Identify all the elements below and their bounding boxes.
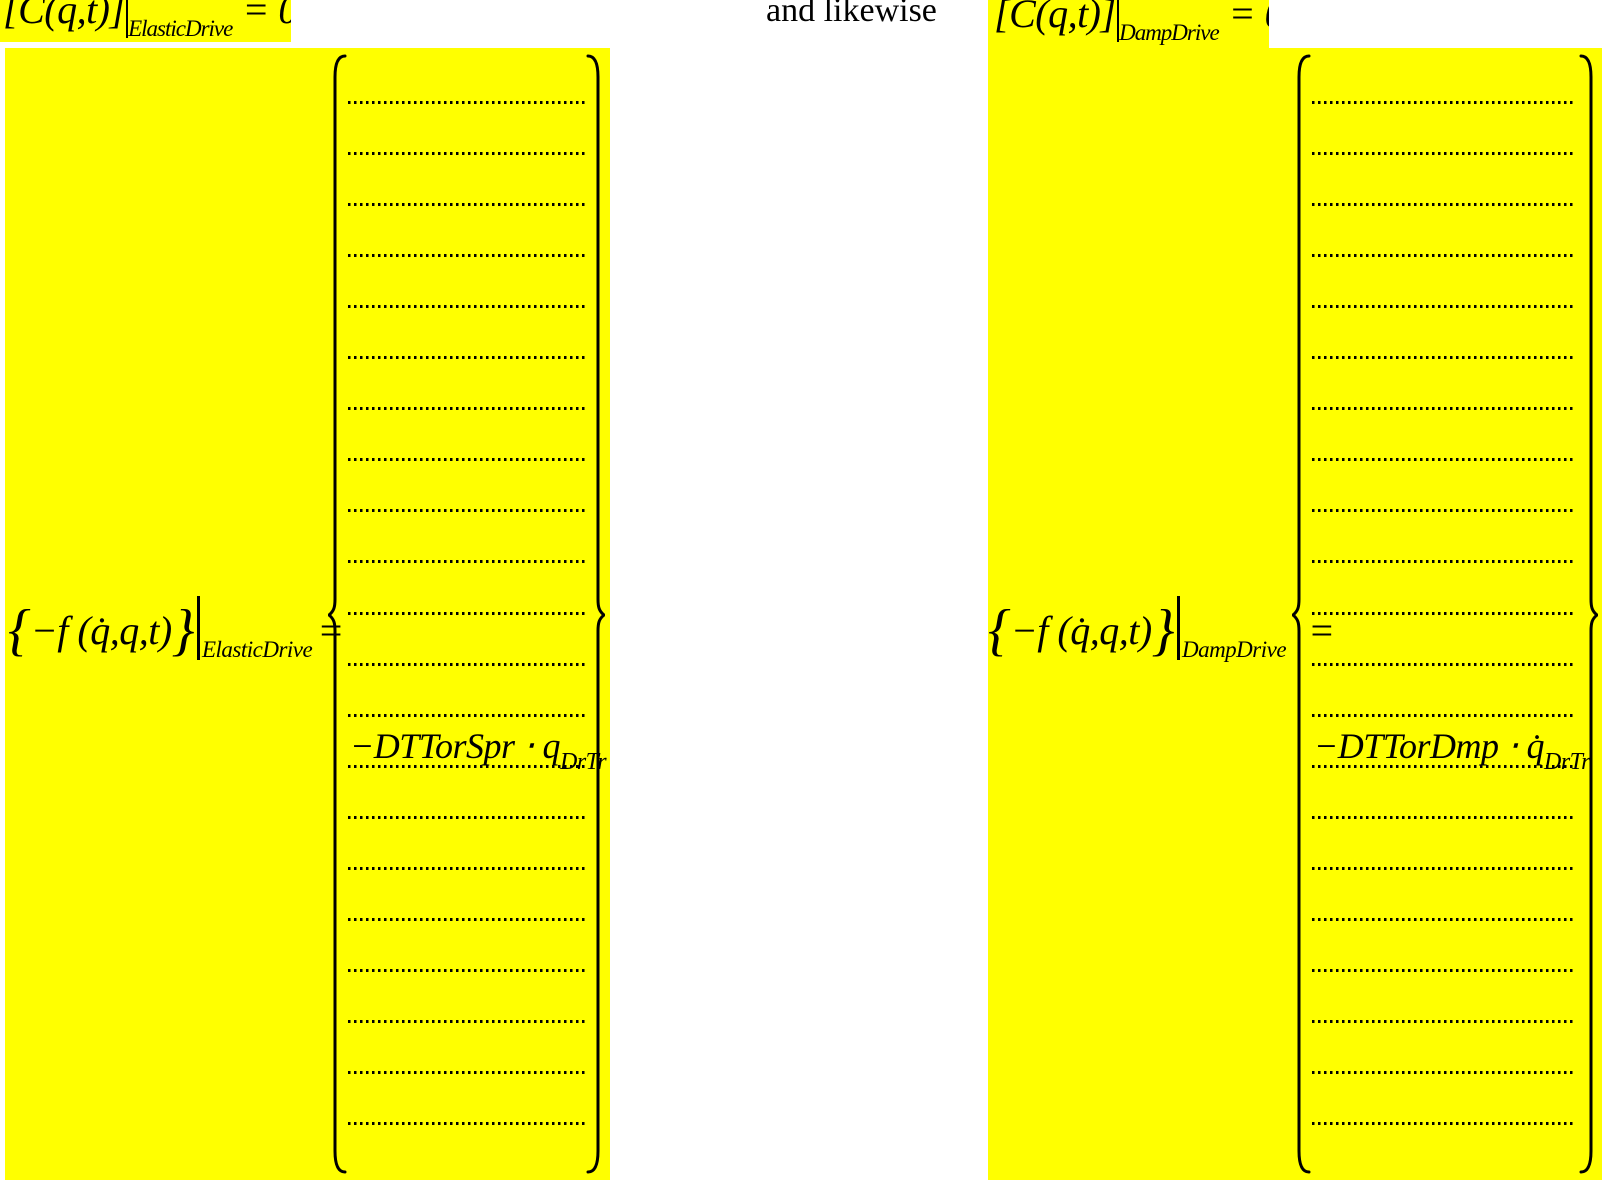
vector-placeholder-row	[1312, 816, 1575, 819]
vector-placeholder-row	[348, 918, 588, 921]
column-vector-damp: −DTTorDmp ⋅ q̇DrTr	[1312, 101, 1575, 1188]
vector-placeholder-row	[348, 203, 588, 206]
vector-placeholder-row	[1312, 867, 1575, 870]
constraint-formula-inner: [C(q,t)]DampDrive= 0	[988, 0, 1269, 44]
vector-placeholder-row	[348, 612, 588, 615]
constraint-subscript: ElasticDrive	[128, 16, 232, 41]
vector-placeholder-row	[348, 407, 588, 410]
vector-entry-base: −DTTorSpr ⋅ q	[350, 728, 560, 764]
constraint-rhs: = 0	[1229, 0, 1269, 36]
open-curly: {	[8, 599, 31, 662]
vector-open-brace-glyph	[1292, 53, 1312, 1175]
vector-placeholder-row	[1312, 458, 1575, 461]
vector-placeholder-row	[348, 152, 588, 155]
constraint-rhs: = 0	[242, 0, 291, 32]
vector-entry: −DTTorDmp ⋅ q̇DrTr	[1312, 716, 1577, 765]
equation-block-elastic: {−f (q̇,q,t)}ElasticDrive= −DTTorSpr ⋅ q…	[5, 48, 610, 1180]
vector-placeholder-row	[1312, 305, 1575, 308]
vector-placeholder-row	[1312, 1020, 1575, 1023]
constraint-expr: [C(q,t)]	[994, 0, 1116, 36]
vector-placeholder-row	[1312, 254, 1575, 257]
connector-text: and likewise	[766, 0, 981, 40]
lhs-subscript: ElasticDrive	[202, 637, 312, 662]
lhs-body: −f (q̇,q,t)	[31, 608, 172, 653]
constraint-formula-elastic: [C(q,t)]ElasticDrive= 0	[0, 0, 291, 42]
connector-label: and likewise	[766, 0, 937, 28]
vector-placeholder-row	[1312, 101, 1575, 104]
vector-placeholder-row	[348, 867, 588, 870]
close-curly: }	[1152, 599, 1175, 662]
vector-entry: −DTTorSpr ⋅ qDrTr	[348, 716, 590, 765]
vector-placeholder-row	[1312, 356, 1575, 359]
vector-placeholder-row	[1312, 560, 1575, 563]
vector-placeholder-row	[348, 356, 588, 359]
evaluation-bar	[197, 596, 200, 660]
vector-placeholder-row	[348, 816, 588, 819]
close-curly: }	[172, 599, 195, 662]
vector-placeholder-row	[348, 305, 588, 308]
vector-placeholder-row	[348, 1071, 588, 1074]
vector-placeholder-row	[348, 254, 588, 257]
lhs-body: −f (q̇,q,t)	[1011, 608, 1152, 653]
lhs-subscript: DampDrive	[1182, 637, 1286, 662]
vector-placeholder-row	[1312, 1122, 1575, 1125]
equation-block-damp: {−f (q̇,q,t)}DampDrive= −DTTorDmp ⋅ q̇Dr…	[988, 48, 1602, 1180]
vector-placeholder-row	[348, 1020, 588, 1023]
vector-placeholder-row	[1312, 407, 1575, 410]
vector-placeholder-row	[348, 663, 588, 666]
column-vector-elastic: −DTTorSpr ⋅ qDrTr	[348, 101, 588, 1188]
open-curly: {	[988, 599, 1011, 662]
vector-placeholder-row	[1312, 509, 1575, 512]
vector-placeholder-row	[1312, 612, 1575, 615]
vector-close-brace-glyph	[1578, 53, 1598, 1175]
evaluation-bar	[1177, 596, 1180, 660]
vector-placeholder-row	[348, 1122, 588, 1125]
equation-lhs: {−f (q̇,q,t)}DampDrive=	[988, 596, 1335, 661]
vector-placeholder-row	[1312, 918, 1575, 921]
vector-placeholder-row	[348, 101, 588, 104]
constraint-expr: [C(q,t)]	[3, 0, 125, 32]
vector-placeholder-row	[348, 509, 588, 512]
vector-placeholder-row	[1312, 203, 1575, 206]
constraint-formula-damp: [C(q,t)]DampDrive= 0	[988, 0, 1269, 48]
vector-close-brace-glyph	[585, 53, 605, 1175]
vector-placeholder-row	[348, 969, 588, 972]
constraint-subscript: DampDrive	[1119, 20, 1219, 45]
constraint-formula-inner: [C(q,t)]ElasticDrive= 0	[0, 0, 291, 40]
vector-placeholder-row	[1312, 1071, 1575, 1074]
vector-placeholder-row	[1312, 152, 1575, 155]
vector-placeholder-row	[348, 560, 588, 563]
vector-open-brace-glyph	[328, 53, 348, 1175]
vector-placeholder-row	[348, 458, 588, 461]
equation-lhs: {−f (q̇,q,t)}ElasticDrive=	[8, 596, 344, 661]
document-page: [C(q,t)]ElasticDrive= 0 and likewise [C(…	[0, 0, 1602, 1188]
vector-placeholder-row	[1312, 663, 1575, 666]
vector-entry-base: −DTTorDmp ⋅ q̇	[1314, 728, 1544, 764]
vector-placeholder-row	[1312, 969, 1575, 972]
